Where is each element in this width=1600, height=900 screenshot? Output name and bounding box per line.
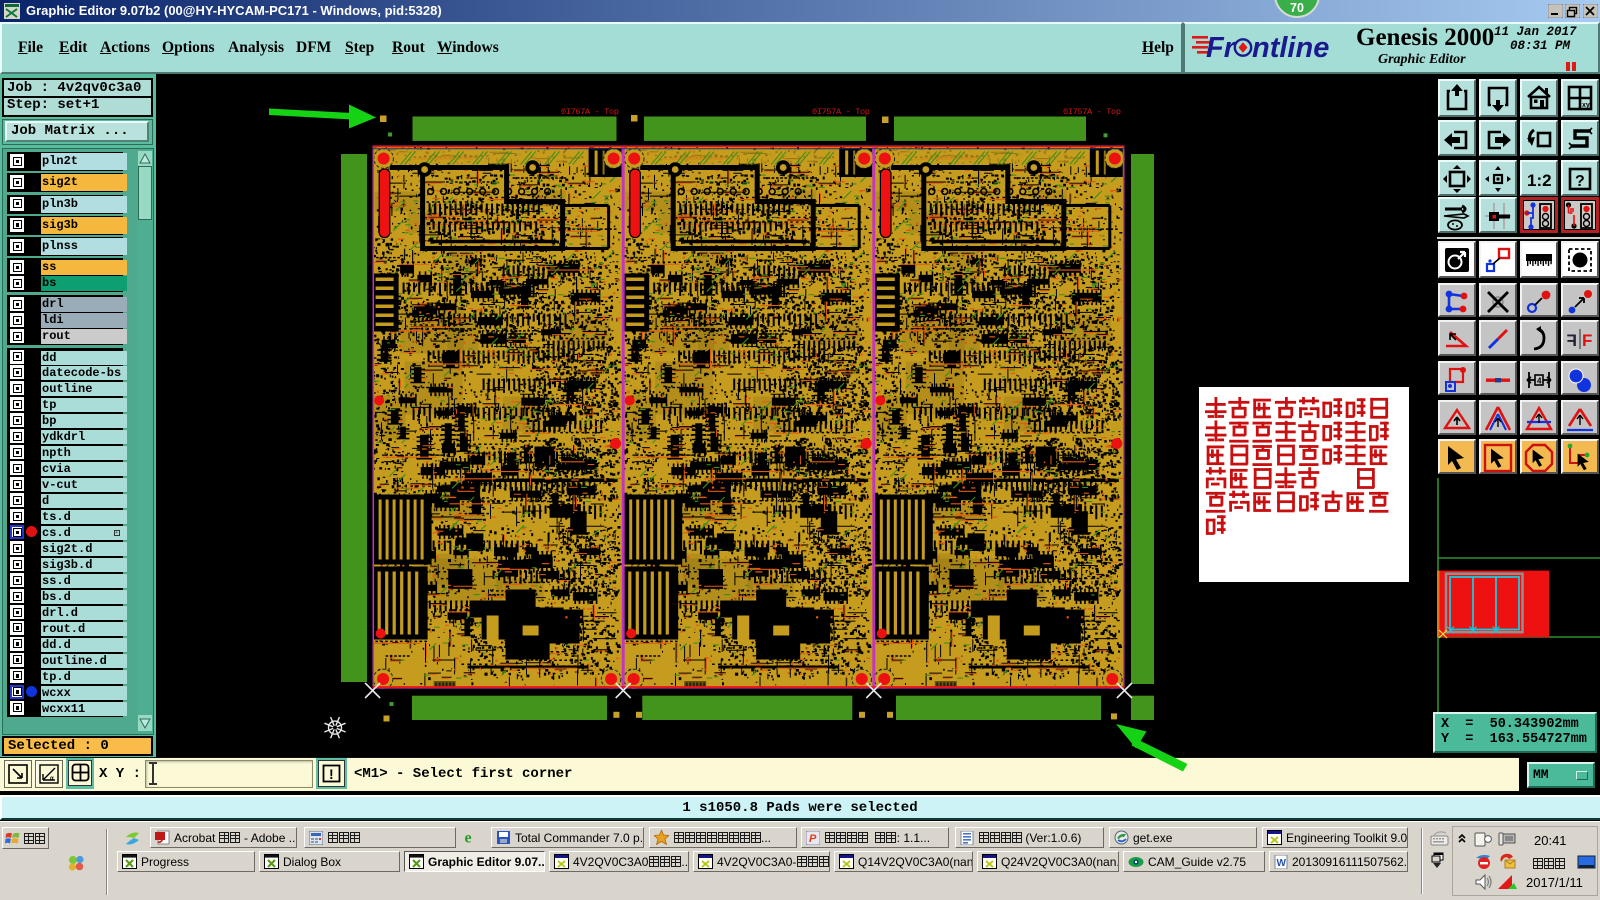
svg-text:4: 4: [1537, 376, 1542, 385]
svg-text:ntline: ntline: [1252, 32, 1329, 64]
svg-text:F: F: [1566, 331, 1576, 350]
svg-text:0I757A - Top: 0I757A - Top: [812, 107, 870, 117]
svg-text:?: ?: [1575, 173, 1585, 190]
svg-text:1:2: 1:2: [1527, 171, 1552, 190]
svg-text:!: !: [329, 766, 334, 782]
svg-text:W: W: [1277, 858, 1287, 869]
svg-text:Fr: Fr: [1206, 32, 1237, 64]
svg-text:e: e: [465, 830, 472, 846]
svg-text:F: F: [1582, 331, 1592, 350]
svg-text:0I757A - Top: 0I757A - Top: [1063, 107, 1121, 117]
svg-text:xy: xy: [1582, 102, 1590, 109]
svg-text:α: α: [50, 776, 54, 782]
svg-text:0I767A - Top: 0I767A - Top: [561, 107, 619, 117]
svg-text:P: P: [809, 833, 817, 845]
